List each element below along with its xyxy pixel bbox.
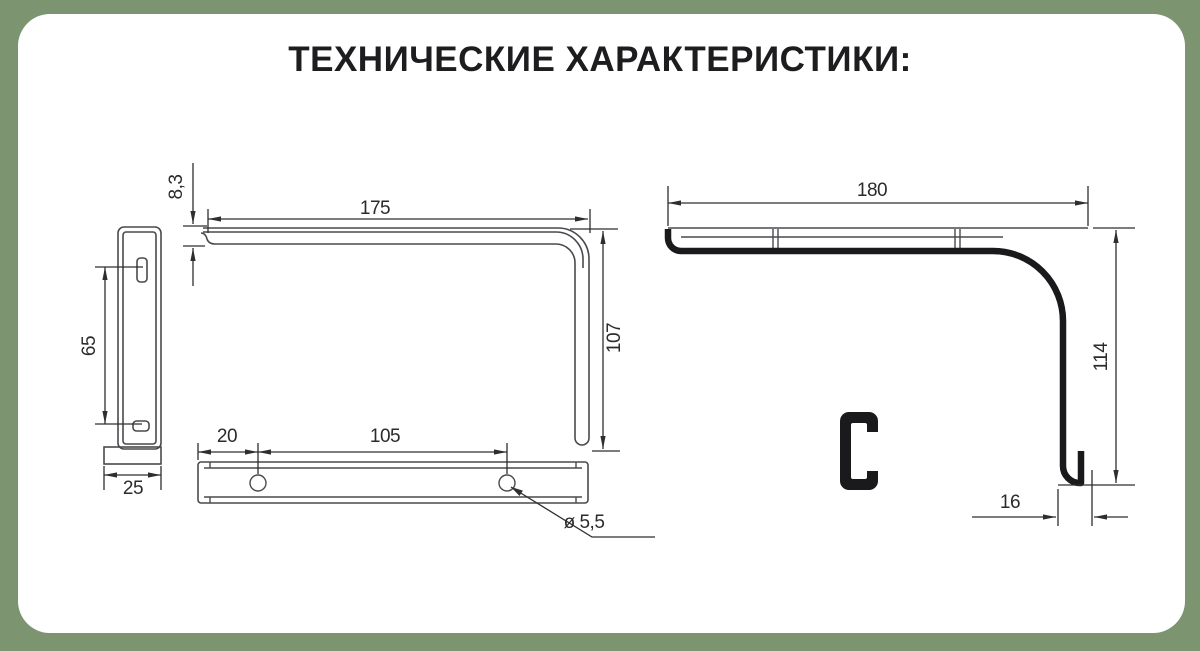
dim-label-hook-width: 16 bbox=[1000, 492, 1020, 513]
mounting-hole-left bbox=[250, 475, 266, 491]
dim-arm-height: 107 bbox=[570, 229, 625, 451]
dim-hole-diameter: ø 5,5 bbox=[511, 487, 655, 537]
dim-label-overall-height: 114 bbox=[1091, 342, 1112, 372]
dim-label-arm-length: 175 bbox=[360, 198, 390, 219]
dim-label-overall-length: 180 bbox=[857, 180, 887, 201]
plate-inner-outline bbox=[123, 232, 156, 444]
bracket-joint-ticks bbox=[773, 229, 960, 249]
plate-outline bbox=[118, 227, 161, 449]
dim-overall-height: 114 bbox=[1058, 228, 1135, 485]
dim-overall-length: 180 bbox=[668, 180, 1088, 226]
profile-outer-contour bbox=[201, 228, 589, 445]
dim-label-hole-diameter: ø 5,5 bbox=[564, 512, 605, 533]
dim-label-flange-thickness: 8,3 bbox=[166, 175, 187, 200]
dim-plate-width: 25 bbox=[104, 466, 161, 499]
dim-label-arm-height: 107 bbox=[604, 323, 625, 353]
dim-label-slot-spacing: 65 bbox=[79, 336, 100, 356]
dim-flange-thickness: 8,3 bbox=[166, 163, 207, 286]
dim-hole-spacing: 105 bbox=[258, 426, 507, 474]
dim-hook-width: 16 bbox=[972, 470, 1128, 526]
bracket-profile-drawing: 180 114 16 bbox=[668, 180, 1135, 526]
dim-hole-edge-offset: 20 bbox=[198, 426, 258, 474]
technical-drawing: 65 25 8,3 175 bbox=[0, 0, 1200, 651]
dim-label-hole-spacing: 105 bbox=[370, 426, 400, 447]
plate-top-slot bbox=[137, 258, 147, 282]
dim-slot-spacing: 65 bbox=[79, 267, 143, 424]
channel-section bbox=[840, 412, 882, 490]
side-view-drawing: 65 25 bbox=[79, 227, 161, 499]
profile-inner-top-line bbox=[203, 232, 583, 268]
plate-bottom-slot bbox=[133, 421, 149, 431]
dim-label-plate-width: 25 bbox=[123, 478, 143, 499]
dim-label-hole-edge-offset: 20 bbox=[217, 426, 237, 447]
front-view-drawing: 8,3 175 107 bbox=[166, 163, 625, 451]
